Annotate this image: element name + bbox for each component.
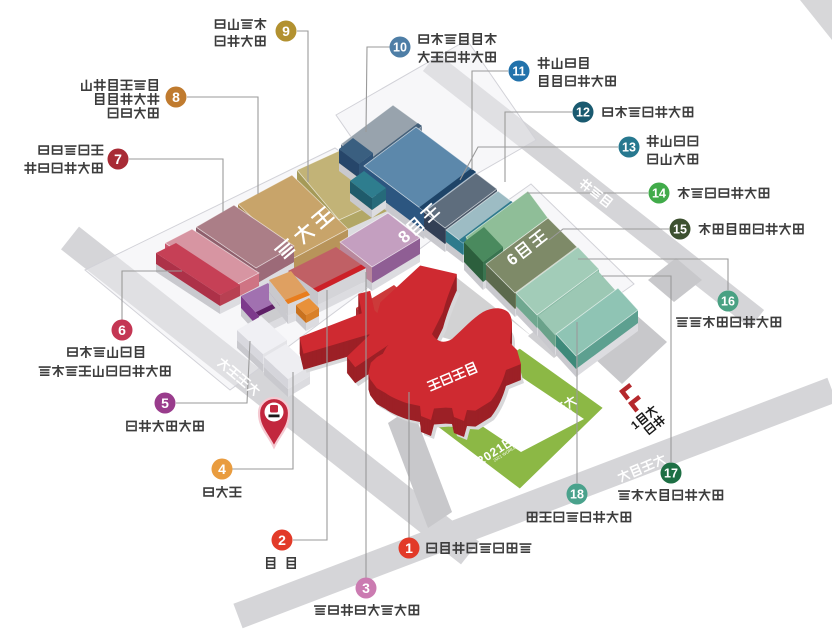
svg-text:13: 13 [622,140,636,154]
svg-text:6: 6 [118,322,126,338]
svg-text:16: 16 [721,294,735,308]
svg-text:2: 2 [278,532,286,548]
svg-text:12: 12 [576,105,590,119]
svg-text:10: 10 [393,40,407,54]
svg-text:17: 17 [664,466,678,480]
svg-text:18: 18 [570,487,584,501]
svg-text:3: 3 [362,580,370,596]
svg-text:1: 1 [405,540,413,556]
svg-text:5: 5 [161,395,169,411]
svg-text:9: 9 [282,23,290,39]
svg-text:8: 8 [172,89,180,105]
svg-text:11: 11 [512,64,525,78]
svg-text:7: 7 [114,151,122,167]
svg-text:14: 14 [652,186,666,200]
svg-text:15: 15 [673,222,687,236]
svg-text:4: 4 [218,461,226,477]
